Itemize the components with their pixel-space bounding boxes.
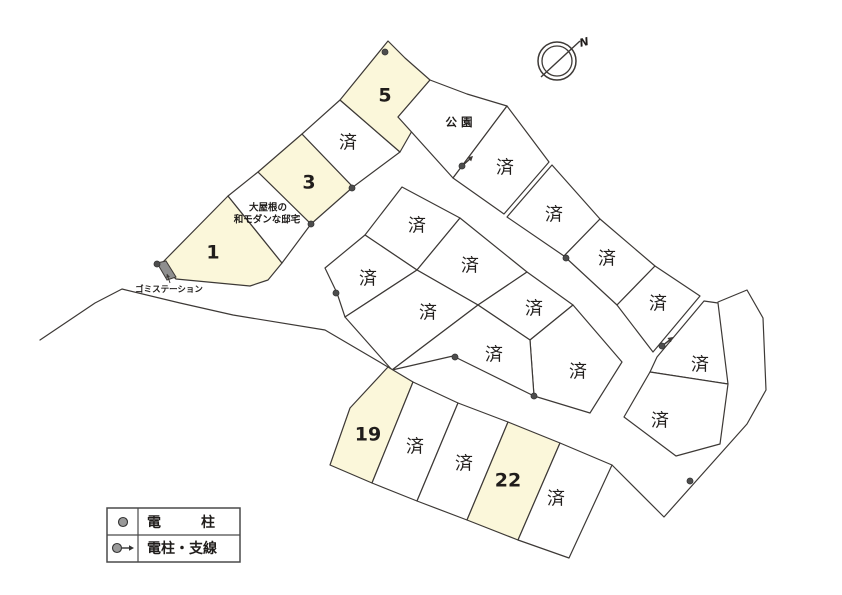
legend-label: 電柱・支線 — [147, 540, 217, 557]
utility-pole-icon — [563, 255, 569, 261]
utility-pole-icon — [687, 478, 693, 484]
utility-pole-icon — [333, 290, 339, 296]
lot-sold-label-4: 済 — [339, 132, 357, 153]
lot-sold-label-b1: 済 — [496, 157, 514, 178]
lot-number-22: 22 — [495, 470, 521, 492]
lot-number-19: 19 — [355, 424, 381, 446]
model-house-note-line1: 大屋根の — [249, 201, 287, 213]
lot-sold-label-b3: 済 — [598, 248, 616, 269]
subdivision-lot-map: 1大屋根の和モダンな邸宅3済5公園済済済済済済済済済済済19済済22済済済ゴミス… — [0, 0, 842, 595]
utility-pole-icon — [308, 221, 314, 227]
park-label: 公園 — [446, 115, 477, 129]
lot-sold-label-r1: 済 — [691, 354, 709, 375]
lot-sold-label-c1: 済 — [408, 215, 426, 236]
utility-pole-guy-icon — [659, 343, 665, 349]
lot-sold-label-c5: 済 — [359, 268, 377, 289]
lot-sold-label-c7: 済 — [485, 344, 503, 365]
utility-pole-icon — [382, 49, 388, 55]
lot-sold-label-b2: 済 — [545, 204, 563, 225]
legend-pole-icon — [119, 518, 128, 527]
utility-pole-icon — [452, 354, 458, 360]
utility-pole-icon — [531, 393, 537, 399]
legend-label: 電 — [147, 514, 161, 531]
lot-sold-label-c3: 済 — [525, 298, 543, 319]
lot-sold-label-b4: 済 — [649, 293, 667, 314]
lot-sold-label-r2: 済 — [651, 410, 669, 431]
lot-number-5: 5 — [378, 85, 391, 107]
site-plan-page: 1大屋根の和モダンな邸宅3済5公園済済済済済済済済済済済19済済22済済済ゴミス… — [0, 0, 842, 595]
legend: 電柱電柱・支線 — [107, 508, 240, 562]
lot-number-3: 3 — [302, 172, 315, 194]
lot-sold-label-c2: 済 — [461, 255, 479, 276]
model-house-note-line2: 和モダンな邸宅 — [233, 213, 301, 225]
utility-pole-guy-icon — [459, 163, 465, 169]
lot-number-1: 1 — [206, 242, 219, 264]
lot-sold-label-c4: 済 — [569, 361, 587, 382]
lot-sold-label-c6: 済 — [419, 302, 437, 323]
lot-sold-label-tb: 済 — [455, 453, 473, 474]
garbage-station-label: ゴミステーション — [135, 284, 203, 295]
legend-label: 柱 — [201, 514, 215, 531]
utility-pole-icon — [349, 185, 355, 191]
utility-pole-icon — [154, 261, 160, 267]
lot-sold-label-tc: 済 — [547, 488, 565, 509]
legend-pole-guy-icon — [113, 544, 122, 553]
lot-sold-label-ta: 済 — [406, 436, 424, 457]
